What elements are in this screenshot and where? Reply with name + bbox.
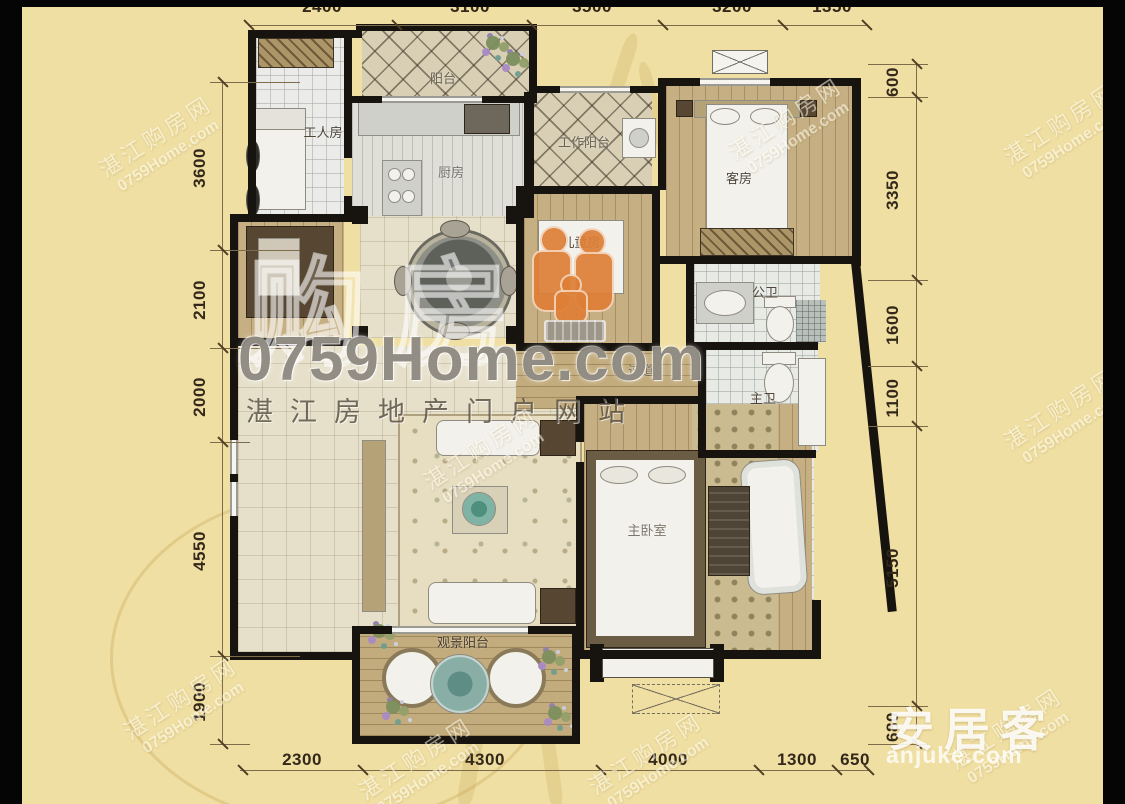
wall	[352, 626, 360, 744]
burner	[388, 190, 401, 203]
frame-right-bar	[1103, 0, 1125, 804]
desk-panel	[258, 238, 300, 296]
room-label-guest-room: 客房	[716, 168, 762, 187]
bed-pillow	[710, 108, 740, 125]
wall	[652, 186, 660, 348]
plant	[486, 36, 500, 50]
sofa	[436, 420, 540, 456]
window	[560, 86, 630, 93]
burner	[402, 168, 415, 181]
wall	[524, 186, 660, 194]
bed-pillow	[600, 466, 638, 484]
dining-chair	[440, 322, 470, 340]
dimension-line-top	[248, 25, 866, 26]
dining-table	[408, 232, 510, 334]
dim-left-5: 1900	[190, 662, 210, 742]
window	[700, 78, 770, 86]
wall	[230, 338, 352, 346]
pillar	[506, 326, 522, 344]
frame-top-bar	[0, 0, 1125, 7]
nightstand	[676, 100, 693, 117]
burner	[402, 190, 415, 203]
room-label-public-bath: 公卫	[742, 282, 788, 301]
wall	[576, 396, 584, 442]
room-label-view-balcony: 观景阳台	[420, 632, 506, 651]
room-label-work-balcony: 工作阳台	[542, 132, 626, 151]
wall	[686, 342, 818, 350]
plant	[386, 700, 400, 714]
dim-right-5: 5150	[883, 528, 903, 608]
anjuke-logo-en: anjuke.com	[886, 742, 1023, 769]
dim-left-3: 2000	[190, 357, 210, 437]
dim-left-1: 3600	[190, 128, 210, 208]
wardrobe-master	[708, 486, 750, 576]
dim-bottom-5: 650	[815, 750, 895, 770]
dining-chair	[440, 220, 470, 238]
bed-pillow	[750, 108, 780, 125]
burner	[388, 168, 401, 181]
dim-right-1: 600	[883, 42, 903, 122]
stove	[382, 160, 422, 216]
dimension-line-left	[222, 82, 223, 745]
wall	[230, 214, 238, 660]
watermark-tile-cn: 湛江购房网	[71, 73, 239, 198]
wall	[230, 214, 352, 222]
room-label-worker-room: 工人房	[292, 122, 354, 141]
nightstand	[800, 100, 817, 117]
dimension-line-bottom	[240, 770, 870, 771]
floorplan-screenshot: 工人房 阳台 厨房 工作阳台 客房 儿童房 公卫 过道 主卫 主卧室 观景阳台 …	[0, 0, 1125, 804]
window-symbol	[712, 50, 768, 74]
table-flower	[462, 492, 496, 526]
washer-door	[629, 128, 649, 148]
side-table	[540, 420, 576, 456]
wall	[572, 626, 580, 744]
bed-master	[596, 460, 694, 636]
wall	[524, 92, 534, 218]
dim-right-3: 1600	[883, 285, 903, 365]
fan-chair	[486, 648, 546, 708]
side-table	[540, 588, 576, 624]
window	[230, 440, 238, 474]
room-label-kids-room: 儿童房	[550, 232, 612, 251]
plant	[542, 650, 556, 664]
shower-mosaic	[796, 300, 826, 342]
kitchen-sink	[464, 104, 510, 134]
room-label-master-bedroom: 主卧室	[614, 520, 680, 539]
dining-chair	[394, 266, 412, 296]
wall	[686, 258, 694, 350]
wardrobe	[258, 38, 334, 68]
tv-cabinet	[362, 440, 386, 612]
bath-sink	[704, 290, 746, 316]
dim-ext	[210, 442, 250, 443]
wall	[352, 736, 580, 744]
dimension-line-right	[916, 64, 917, 745]
plant	[506, 52, 520, 66]
dim-bottom-2: 4300	[445, 750, 525, 770]
wall	[852, 78, 861, 266]
watermark-tile-en: 0759Home.com	[88, 100, 249, 213]
pillar	[506, 206, 522, 224]
window	[230, 482, 238, 516]
wall	[698, 450, 816, 458]
pillar	[352, 206, 368, 224]
dim-left-4: 4550	[190, 511, 210, 591]
frame-left-bar	[0, 0, 22, 804]
sofa	[428, 582, 536, 624]
wall	[698, 350, 706, 458]
wall	[658, 78, 666, 190]
bed-pillow	[648, 466, 686, 484]
dim-left-2: 2100	[190, 260, 210, 340]
window	[382, 96, 482, 103]
room-label-balcony: 阳台	[420, 68, 466, 87]
dim-bottom-1: 2300	[262, 750, 342, 770]
wall	[576, 396, 706, 404]
wardrobe	[700, 228, 794, 256]
wall	[524, 343, 660, 351]
dim-right-2: 3350	[883, 150, 903, 230]
pillar	[352, 326, 368, 344]
bath-vanity	[798, 358, 826, 446]
dim-right-4: 1100	[883, 358, 903, 438]
wall	[248, 30, 256, 222]
wall	[576, 650, 821, 659]
toilet	[766, 306, 794, 342]
dim-ext	[210, 744, 250, 745]
room-label-master-bath: 主卫	[742, 388, 784, 407]
room-label-hallway: 过道	[618, 360, 664, 379]
plant	[548, 706, 562, 720]
balcony-table	[430, 654, 490, 714]
ac-unit-symbol	[632, 684, 720, 714]
dim-bottom-3: 4000	[628, 750, 708, 770]
room-label-kitchen: 厨房	[428, 162, 474, 181]
